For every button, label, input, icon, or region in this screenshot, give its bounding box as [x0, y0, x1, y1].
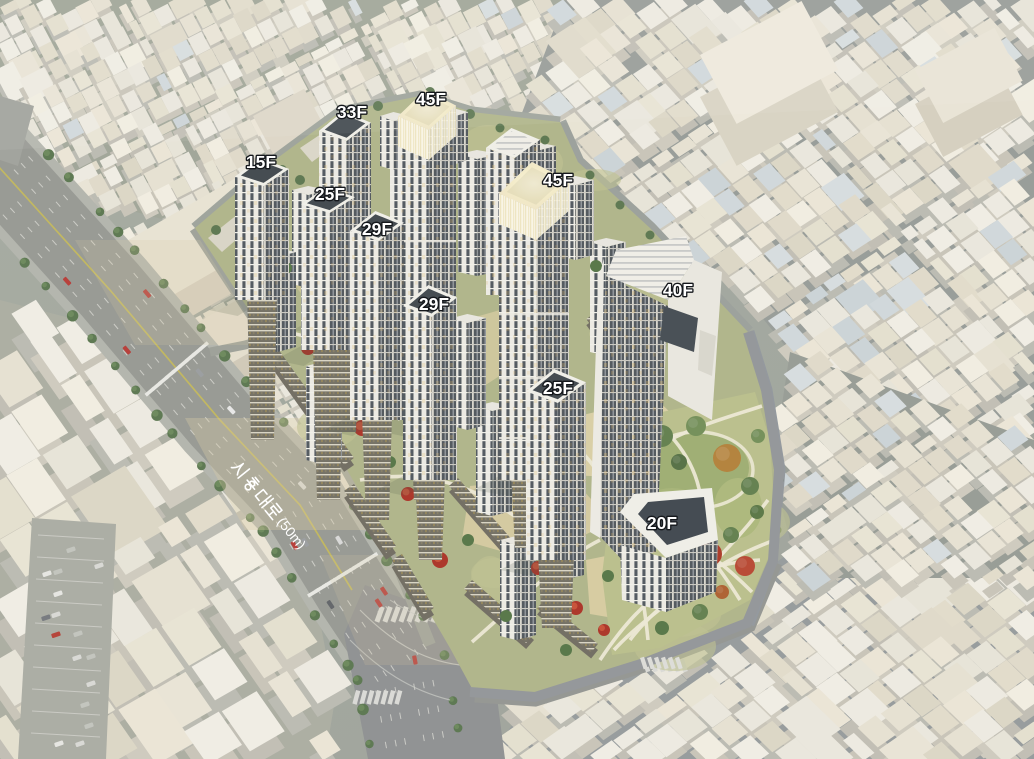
svg-text:29F: 29F [419, 294, 449, 314]
svg-text:40F: 40F [663, 280, 693, 300]
svg-text:29F: 29F [362, 219, 392, 239]
svg-text:25F: 25F [543, 378, 573, 398]
svg-text:20F: 20F [647, 513, 677, 533]
svg-text:25F: 25F [315, 184, 345, 204]
svg-text:15F: 15F [246, 152, 276, 172]
svg-text:33F: 33F [337, 102, 367, 122]
svg-text:45F: 45F [416, 89, 446, 109]
svg-text:45F: 45F [543, 170, 573, 190]
